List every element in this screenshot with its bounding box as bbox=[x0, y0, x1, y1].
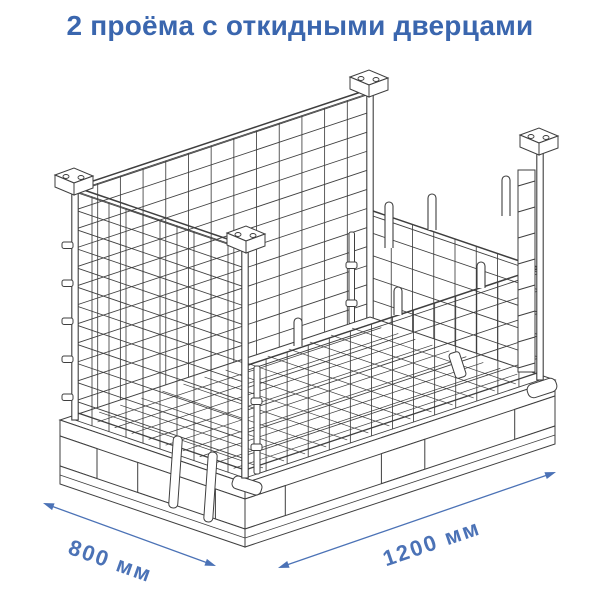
pallet-cage-drawing: 800 мм1200 мм bbox=[0, 0, 600, 600]
cage-line-art bbox=[55, 70, 558, 547]
dimension-label-width: 800 мм bbox=[65, 535, 156, 588]
illustration-stage: 2 проёма с откидными дверцами 800 мм1200… bbox=[0, 0, 600, 600]
dimension-label-length: 1200 мм bbox=[379, 515, 483, 572]
page: { "title": { "text": "2 проёма с откидны… bbox=[0, 0, 600, 600]
